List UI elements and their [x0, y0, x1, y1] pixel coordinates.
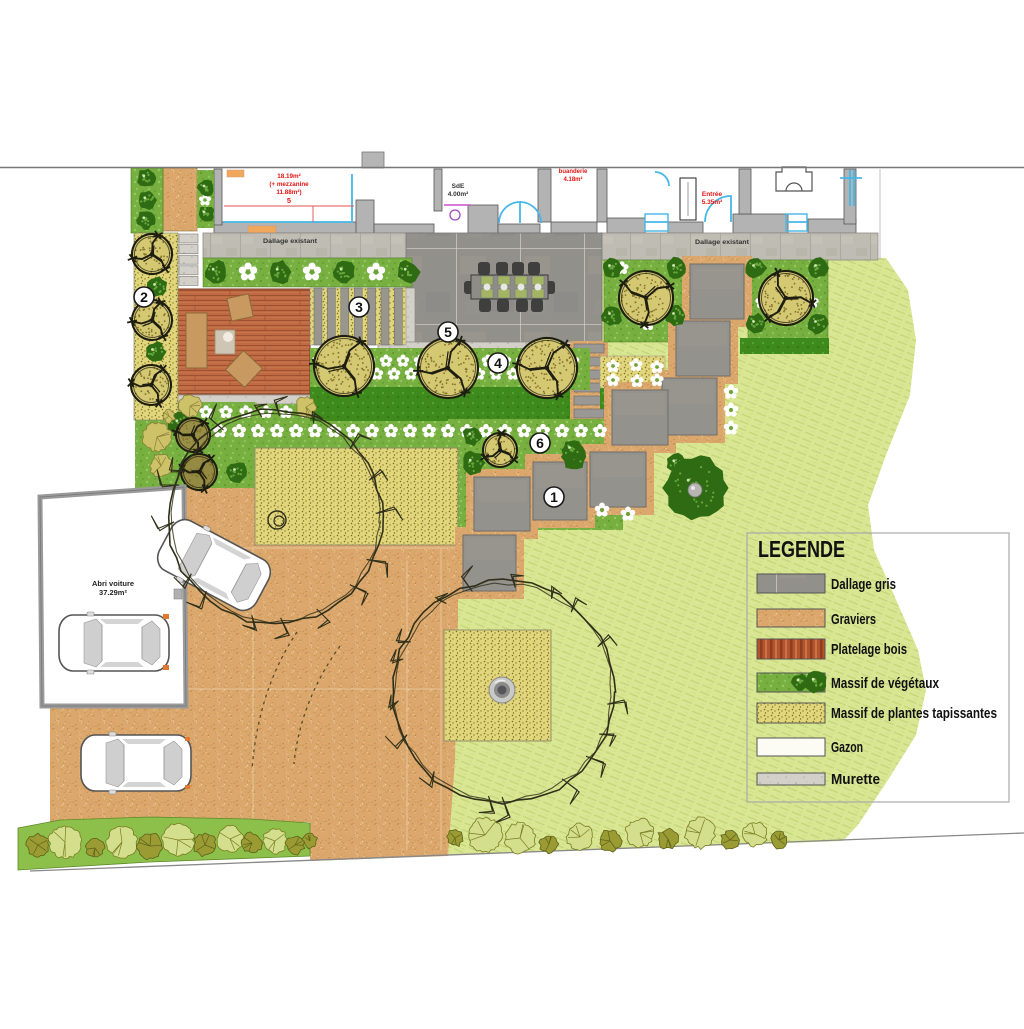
svg-text:Platelage bois: Platelage bois	[831, 641, 907, 658]
svg-text:(+ mezzanine: (+ mezzanine	[269, 181, 309, 188]
svg-text:18.19m²: 18.19m²	[277, 173, 300, 180]
svg-text:Massif de plantes tapissantes: Massif de plantes tapissantes	[831, 705, 997, 722]
svg-text:LEGENDE: LEGENDE	[758, 536, 845, 562]
svg-text:SdE: SdE	[452, 183, 465, 190]
svg-text:5.35m²: 5.35m²	[702, 199, 723, 206]
svg-text:buanderie: buanderie	[559, 169, 588, 175]
svg-text:11.88m²): 11.88m²)	[276, 189, 301, 196]
svg-text:3: 3	[355, 299, 363, 315]
svg-text:Entrée: Entrée	[702, 191, 723, 198]
svg-text:Massif de végétaux: Massif de végétaux	[831, 675, 940, 692]
svg-text:2: 2	[140, 289, 148, 305]
svg-text:4: 4	[494, 355, 502, 371]
svg-text:Murette: Murette	[831, 771, 880, 788]
svg-text:Dallage existant: Dallage existant	[263, 238, 318, 245]
svg-text:Gazon: Gazon	[831, 739, 863, 756]
svg-text:1: 1	[550, 489, 558, 505]
svg-text:6: 6	[536, 435, 544, 451]
svg-text:Graviers: Graviers	[831, 611, 876, 628]
svg-text:37.29m²: 37.29m²	[99, 588, 127, 597]
svg-text:Abri voiture: Abri voiture	[92, 579, 134, 588]
svg-text:Dallage gris: Dallage gris	[831, 576, 896, 593]
svg-text:5: 5	[287, 196, 291, 205]
svg-text:4.00m²: 4.00m²	[448, 191, 469, 198]
svg-text:5: 5	[444, 324, 452, 340]
svg-text:4.18m²: 4.18m²	[563, 176, 582, 183]
svg-text:Dallage existant: Dallage existant	[695, 239, 750, 246]
